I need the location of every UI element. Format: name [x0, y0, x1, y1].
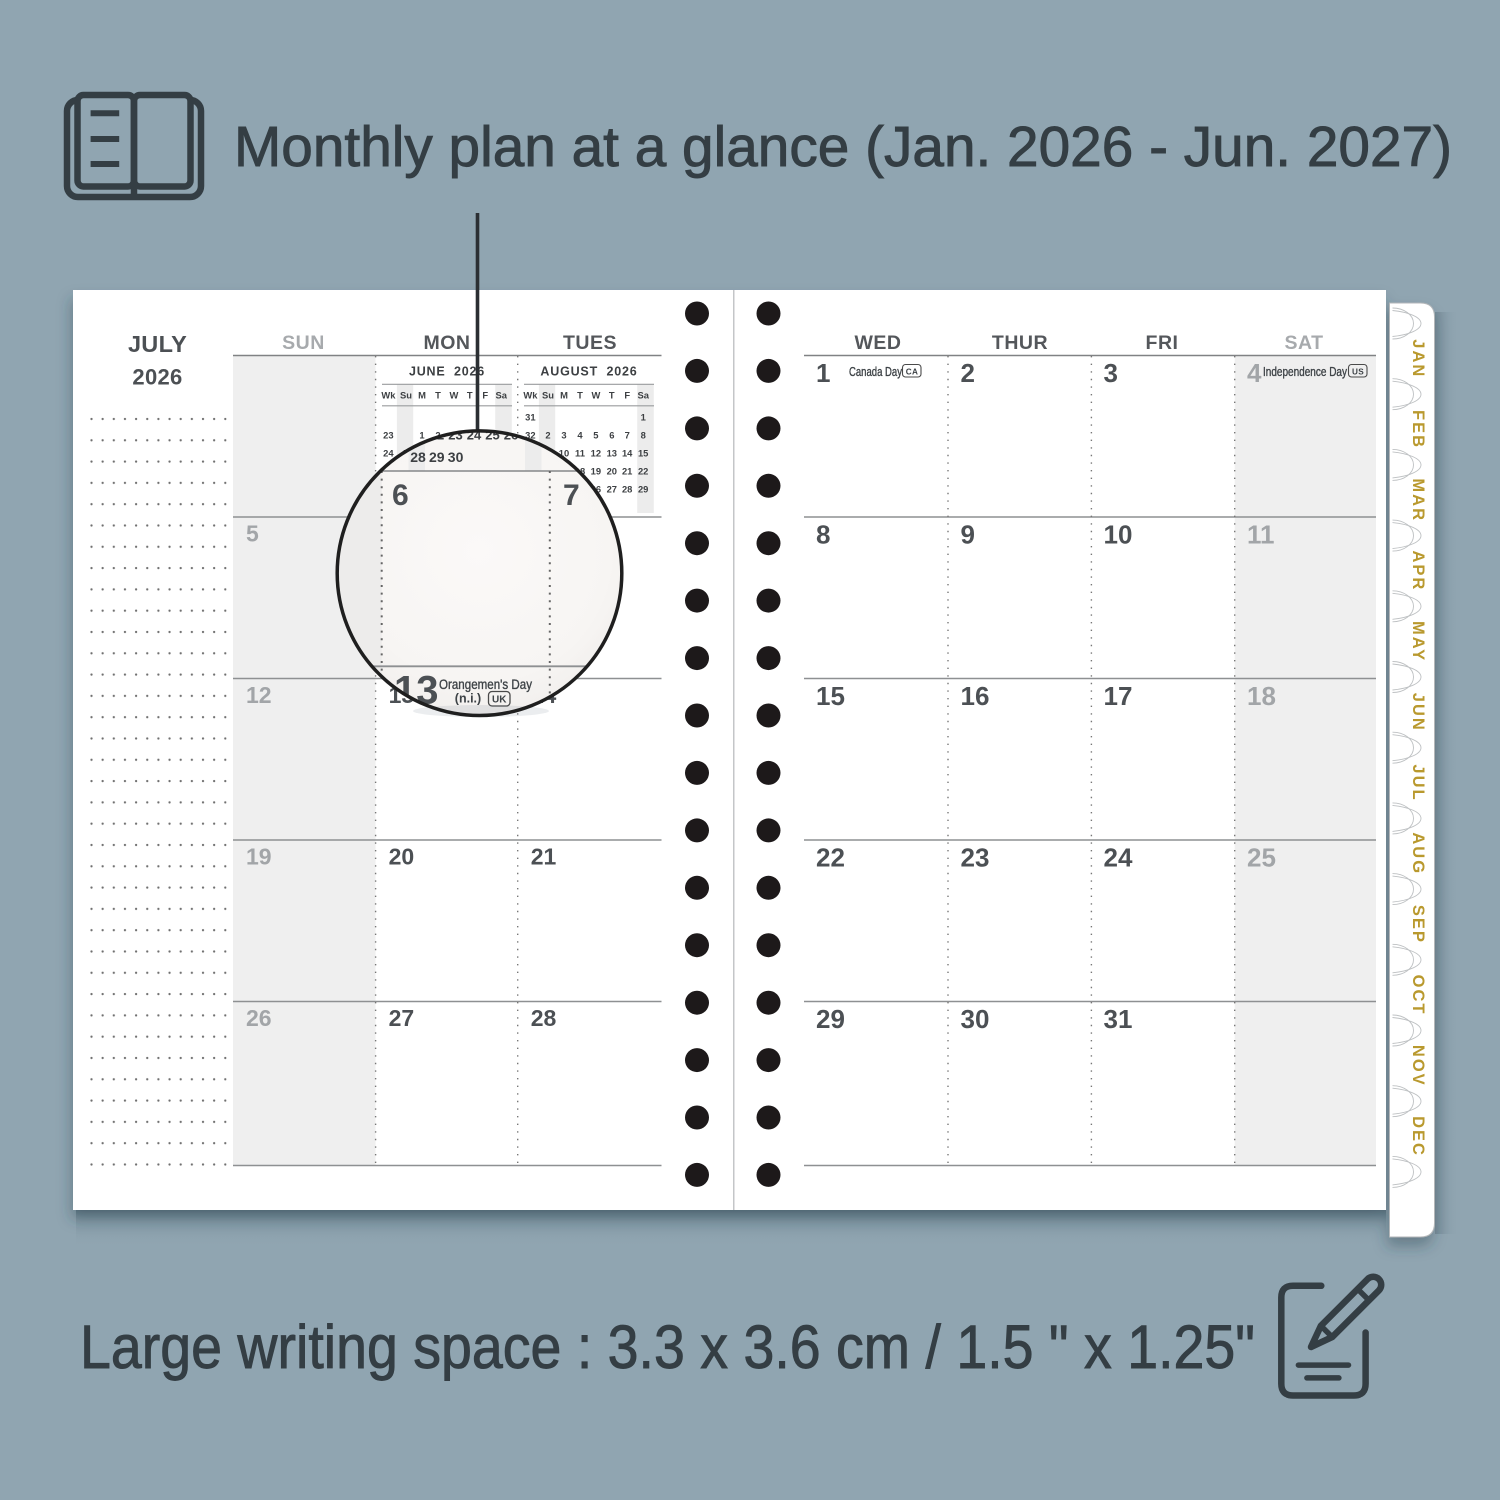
svg-text:30: 30: [448, 449, 464, 465]
svg-text:T: T: [467, 389, 473, 400]
svg-text:7: 7: [563, 479, 580, 512]
svg-text:Wk: Wk: [523, 389, 538, 400]
svg-text:8: 8: [641, 430, 646, 441]
svg-text:Sa: Sa: [637, 389, 649, 400]
svg-text:M: M: [418, 389, 426, 400]
svg-text:17: 17: [1104, 681, 1133, 711]
svg-text:1: 1: [641, 412, 646, 423]
svg-text:NOV: NOV: [1409, 1045, 1427, 1087]
svg-text:US: US: [1352, 368, 1364, 377]
svg-text:25: 25: [1247, 843, 1276, 873]
svg-text:FRI: FRI: [1146, 332, 1179, 354]
svg-text:22: 22: [816, 843, 845, 873]
svg-text:TUES: TUES: [563, 332, 617, 354]
svg-text:FEB: FEB: [1409, 410, 1427, 449]
svg-text:23: 23: [961, 843, 990, 873]
svg-text:DEC: DEC: [1409, 1116, 1427, 1157]
svg-text:20: 20: [607, 466, 617, 477]
svg-text:Su: Su: [542, 389, 554, 400]
svg-text:19: 19: [246, 844, 272, 870]
svg-text:5: 5: [593, 430, 598, 441]
svg-text:10: 10: [1104, 520, 1133, 550]
svg-text:2: 2: [961, 358, 975, 388]
svg-text:28: 28: [531, 1005, 557, 1031]
svg-text:AUGUST 2026: AUGUST 2026: [540, 365, 637, 379]
svg-text:31: 31: [525, 412, 535, 423]
svg-text:Sa: Sa: [495, 389, 507, 400]
svg-text:13: 13: [607, 448, 617, 459]
svg-text:JAN: JAN: [1409, 339, 1427, 378]
svg-text:F: F: [482, 389, 488, 400]
svg-text:16: 16: [961, 681, 990, 711]
svg-text:JULY: JULY: [128, 331, 187, 357]
svg-text:24: 24: [383, 448, 394, 459]
svg-text:11: 11: [1247, 520, 1275, 550]
svg-text:24: 24: [1104, 843, 1133, 873]
svg-text:3: 3: [561, 430, 566, 441]
svg-text:Wk: Wk: [381, 389, 396, 400]
svg-text:MAY: MAY: [1409, 621, 1427, 662]
svg-text:Su: Su: [400, 389, 412, 400]
svg-text:1: 1: [419, 430, 424, 441]
svg-text:MAR: MAR: [1409, 478, 1427, 522]
svg-text:29: 29: [429, 449, 445, 465]
svg-text:SAT: SAT: [1284, 332, 1323, 354]
svg-text:15: 15: [638, 448, 648, 459]
svg-text:M: M: [560, 389, 568, 400]
svg-text:Independence Day: Independence Day: [1263, 365, 1348, 379]
svg-text:T: T: [577, 389, 583, 400]
svg-text:28: 28: [622, 484, 632, 495]
svg-text:MON: MON: [424, 332, 471, 354]
svg-text:26: 26: [246, 1005, 272, 1031]
svg-text:APR: APR: [1409, 550, 1427, 591]
svg-text:SEP: SEP: [1409, 905, 1427, 944]
svg-text:8: 8: [816, 520, 830, 550]
svg-text:SUN: SUN: [282, 332, 325, 354]
svg-text:31: 31: [1104, 1004, 1133, 1034]
svg-text:28: 28: [410, 449, 426, 465]
svg-text:1: 1: [816, 358, 830, 388]
svg-text:UK: UK: [492, 695, 507, 706]
svg-text:30: 30: [961, 1004, 990, 1034]
svg-text:12: 12: [591, 448, 601, 459]
svg-text:T: T: [435, 389, 441, 400]
svg-text:6: 6: [392, 479, 409, 512]
svg-text:T: T: [609, 389, 615, 400]
svg-text:Orangemen's Day: Orangemen's Day: [439, 677, 532, 692]
svg-text:5: 5: [246, 521, 259, 547]
svg-text:19: 19: [591, 466, 601, 477]
svg-text:Canada Day: Canada Day: [849, 365, 903, 379]
svg-text:29: 29: [816, 1004, 845, 1034]
svg-text:JUL: JUL: [1409, 764, 1427, 801]
svg-text:CA: CA: [906, 368, 918, 377]
svg-text:Large writing space : 3.3 x 3: Large writing space : 3.3 x 3.6 cm / 1.5…: [80, 1313, 1255, 1381]
svg-text:7: 7: [625, 430, 630, 441]
svg-text:15: 15: [816, 681, 845, 711]
svg-text:20: 20: [389, 844, 415, 870]
svg-text:OCT: OCT: [1409, 975, 1427, 1016]
svg-text:(n.i.): (n.i.): [455, 692, 481, 706]
svg-text:F: F: [624, 389, 630, 400]
svg-text:6: 6: [609, 430, 614, 441]
svg-text:21: 21: [531, 844, 557, 870]
svg-text:27: 27: [607, 484, 617, 495]
svg-text:2: 2: [545, 430, 550, 441]
svg-text:WED: WED: [855, 332, 902, 354]
svg-text:W: W: [591, 389, 600, 400]
svg-text:11: 11: [575, 448, 585, 459]
svg-text:AUG: AUG: [1409, 832, 1427, 875]
svg-text:JUNE 2026: JUNE 2026: [409, 365, 485, 379]
svg-text:THUR: THUR: [992, 332, 1048, 354]
svg-text:W: W: [449, 389, 458, 400]
svg-text:3: 3: [1104, 358, 1118, 388]
svg-text:29: 29: [638, 484, 648, 495]
svg-text:4: 4: [577, 430, 583, 441]
svg-text:12: 12: [246, 682, 272, 708]
svg-text:23: 23: [383, 430, 393, 441]
svg-text:14: 14: [622, 448, 633, 459]
svg-text:18: 18: [1247, 681, 1276, 711]
svg-text:Monthly plan at a glance (Jan.: Monthly plan at a glance (Jan. 2026 - Ju…: [234, 115, 1452, 179]
svg-text:4: 4: [1247, 358, 1262, 388]
svg-text:21: 21: [622, 466, 632, 477]
svg-text:2026: 2026: [132, 365, 182, 390]
svg-text:9: 9: [961, 520, 975, 550]
svg-text:22: 22: [638, 466, 648, 477]
svg-text:JUN: JUN: [1409, 693, 1427, 732]
svg-text:27: 27: [389, 1005, 415, 1031]
